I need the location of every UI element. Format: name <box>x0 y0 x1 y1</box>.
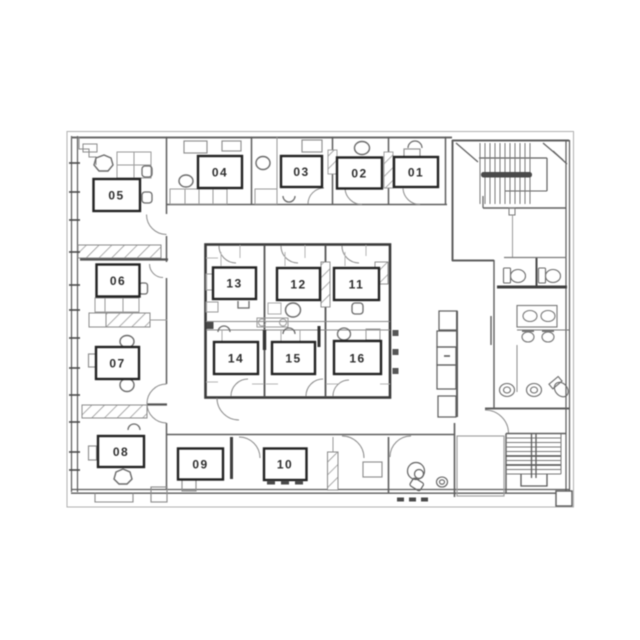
svg-text:09: 09 <box>192 458 208 472</box>
svg-text:13: 13 <box>226 277 242 291</box>
svg-text:11: 11 <box>349 278 365 292</box>
svg-text:15: 15 <box>285 352 301 366</box>
svg-text:02: 02 <box>351 167 367 181</box>
svg-text:14: 14 <box>228 352 244 366</box>
svg-text:01: 01 <box>408 166 424 180</box>
svg-text:03: 03 <box>293 165 309 179</box>
svg-text:12: 12 <box>290 278 306 292</box>
svg-text:07: 07 <box>109 357 125 371</box>
svg-text:10: 10 <box>277 458 293 472</box>
svg-text:16: 16 <box>349 352 365 366</box>
svg-text:08: 08 <box>113 445 129 459</box>
svg-text:06: 06 <box>110 274 126 288</box>
svg-text:04: 04 <box>212 166 228 180</box>
svg-text:05: 05 <box>108 189 124 203</box>
